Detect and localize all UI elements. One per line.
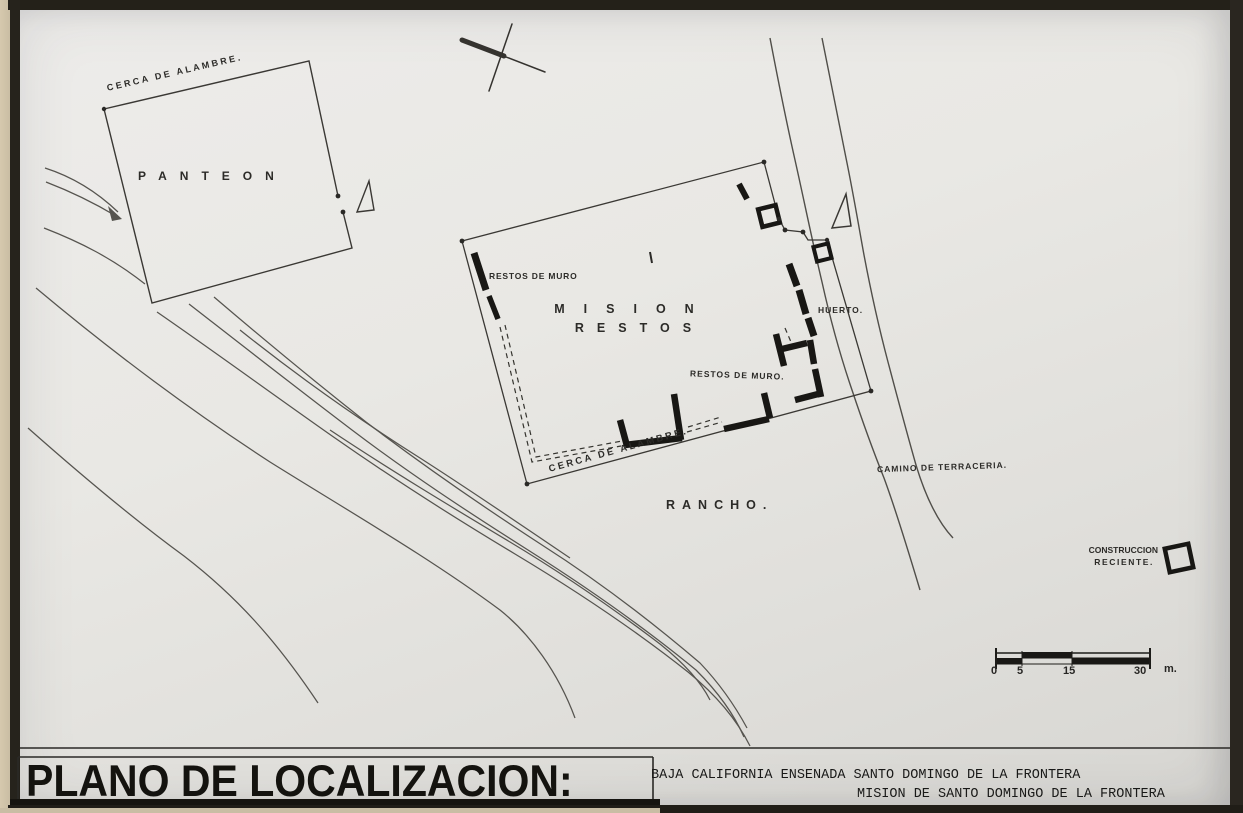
recent-construction-symbols: [758, 205, 832, 262]
stream-arrowhead-icon: [108, 206, 122, 221]
location-line1: BAJA CALIFORNIA ENSENADA SANTO DOMINGO D…: [651, 768, 1080, 783]
location-line2: MISION DE SANTO DOMINGO DE LA FRONTERA: [857, 787, 1165, 802]
north-cross-icon: [462, 24, 545, 91]
book-page-edge-bottom: [0, 808, 660, 813]
legend-label-line1: CONSTRUCCION: [1056, 544, 1158, 556]
scale-unit-label: m.: [1164, 663, 1177, 675]
wall-remains-west-label: RESTOS DE MURO: [489, 271, 578, 281]
huerto-label: HUERTO.: [818, 305, 863, 315]
legend-recent-construction-label: CONSTRUCCION RECIENTE.: [1056, 544, 1158, 568]
legend-label-line2: RECIENTE.: [1056, 556, 1158, 568]
interior-tick-mark: [650, 252, 652, 263]
scale-tick-0: 0: [991, 665, 997, 677]
rancho-label: RANCHO.: [666, 498, 773, 512]
panteon-label: PANTEON: [138, 169, 287, 183]
mission-restos-label-line2: RESTOS: [547, 321, 732, 335]
scale-tick-30: 30: [1134, 665, 1146, 677]
mission-restos-label-line1: MISION: [541, 302, 726, 316]
arroyo-stream-lines: [28, 168, 750, 746]
map-linework: [0, 0, 1243, 813]
legend-recent-construction-icon: [1165, 544, 1193, 572]
scale-tick-15: 15: [1063, 665, 1075, 677]
scale-tick-5: 5: [1017, 665, 1023, 677]
plan-title: PLANO DE LOCALIZACION:: [26, 756, 573, 807]
panteon-gate-icon: [357, 181, 374, 212]
site-plan-photo: CERCA DE ALAMBRE. PANTEON RESTOS DE MURO…: [0, 0, 1243, 813]
road-gate-marker-icon: [832, 194, 851, 228]
